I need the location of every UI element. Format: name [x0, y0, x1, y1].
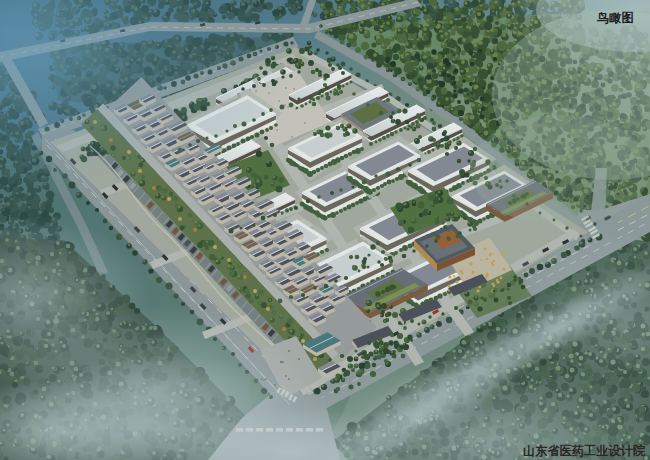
svg-text:山东省医药工业设计院: 山东省医药工业设计院: [523, 443, 646, 458]
svg-text:鸟瞰图: 鸟瞰图: [596, 11, 634, 25]
